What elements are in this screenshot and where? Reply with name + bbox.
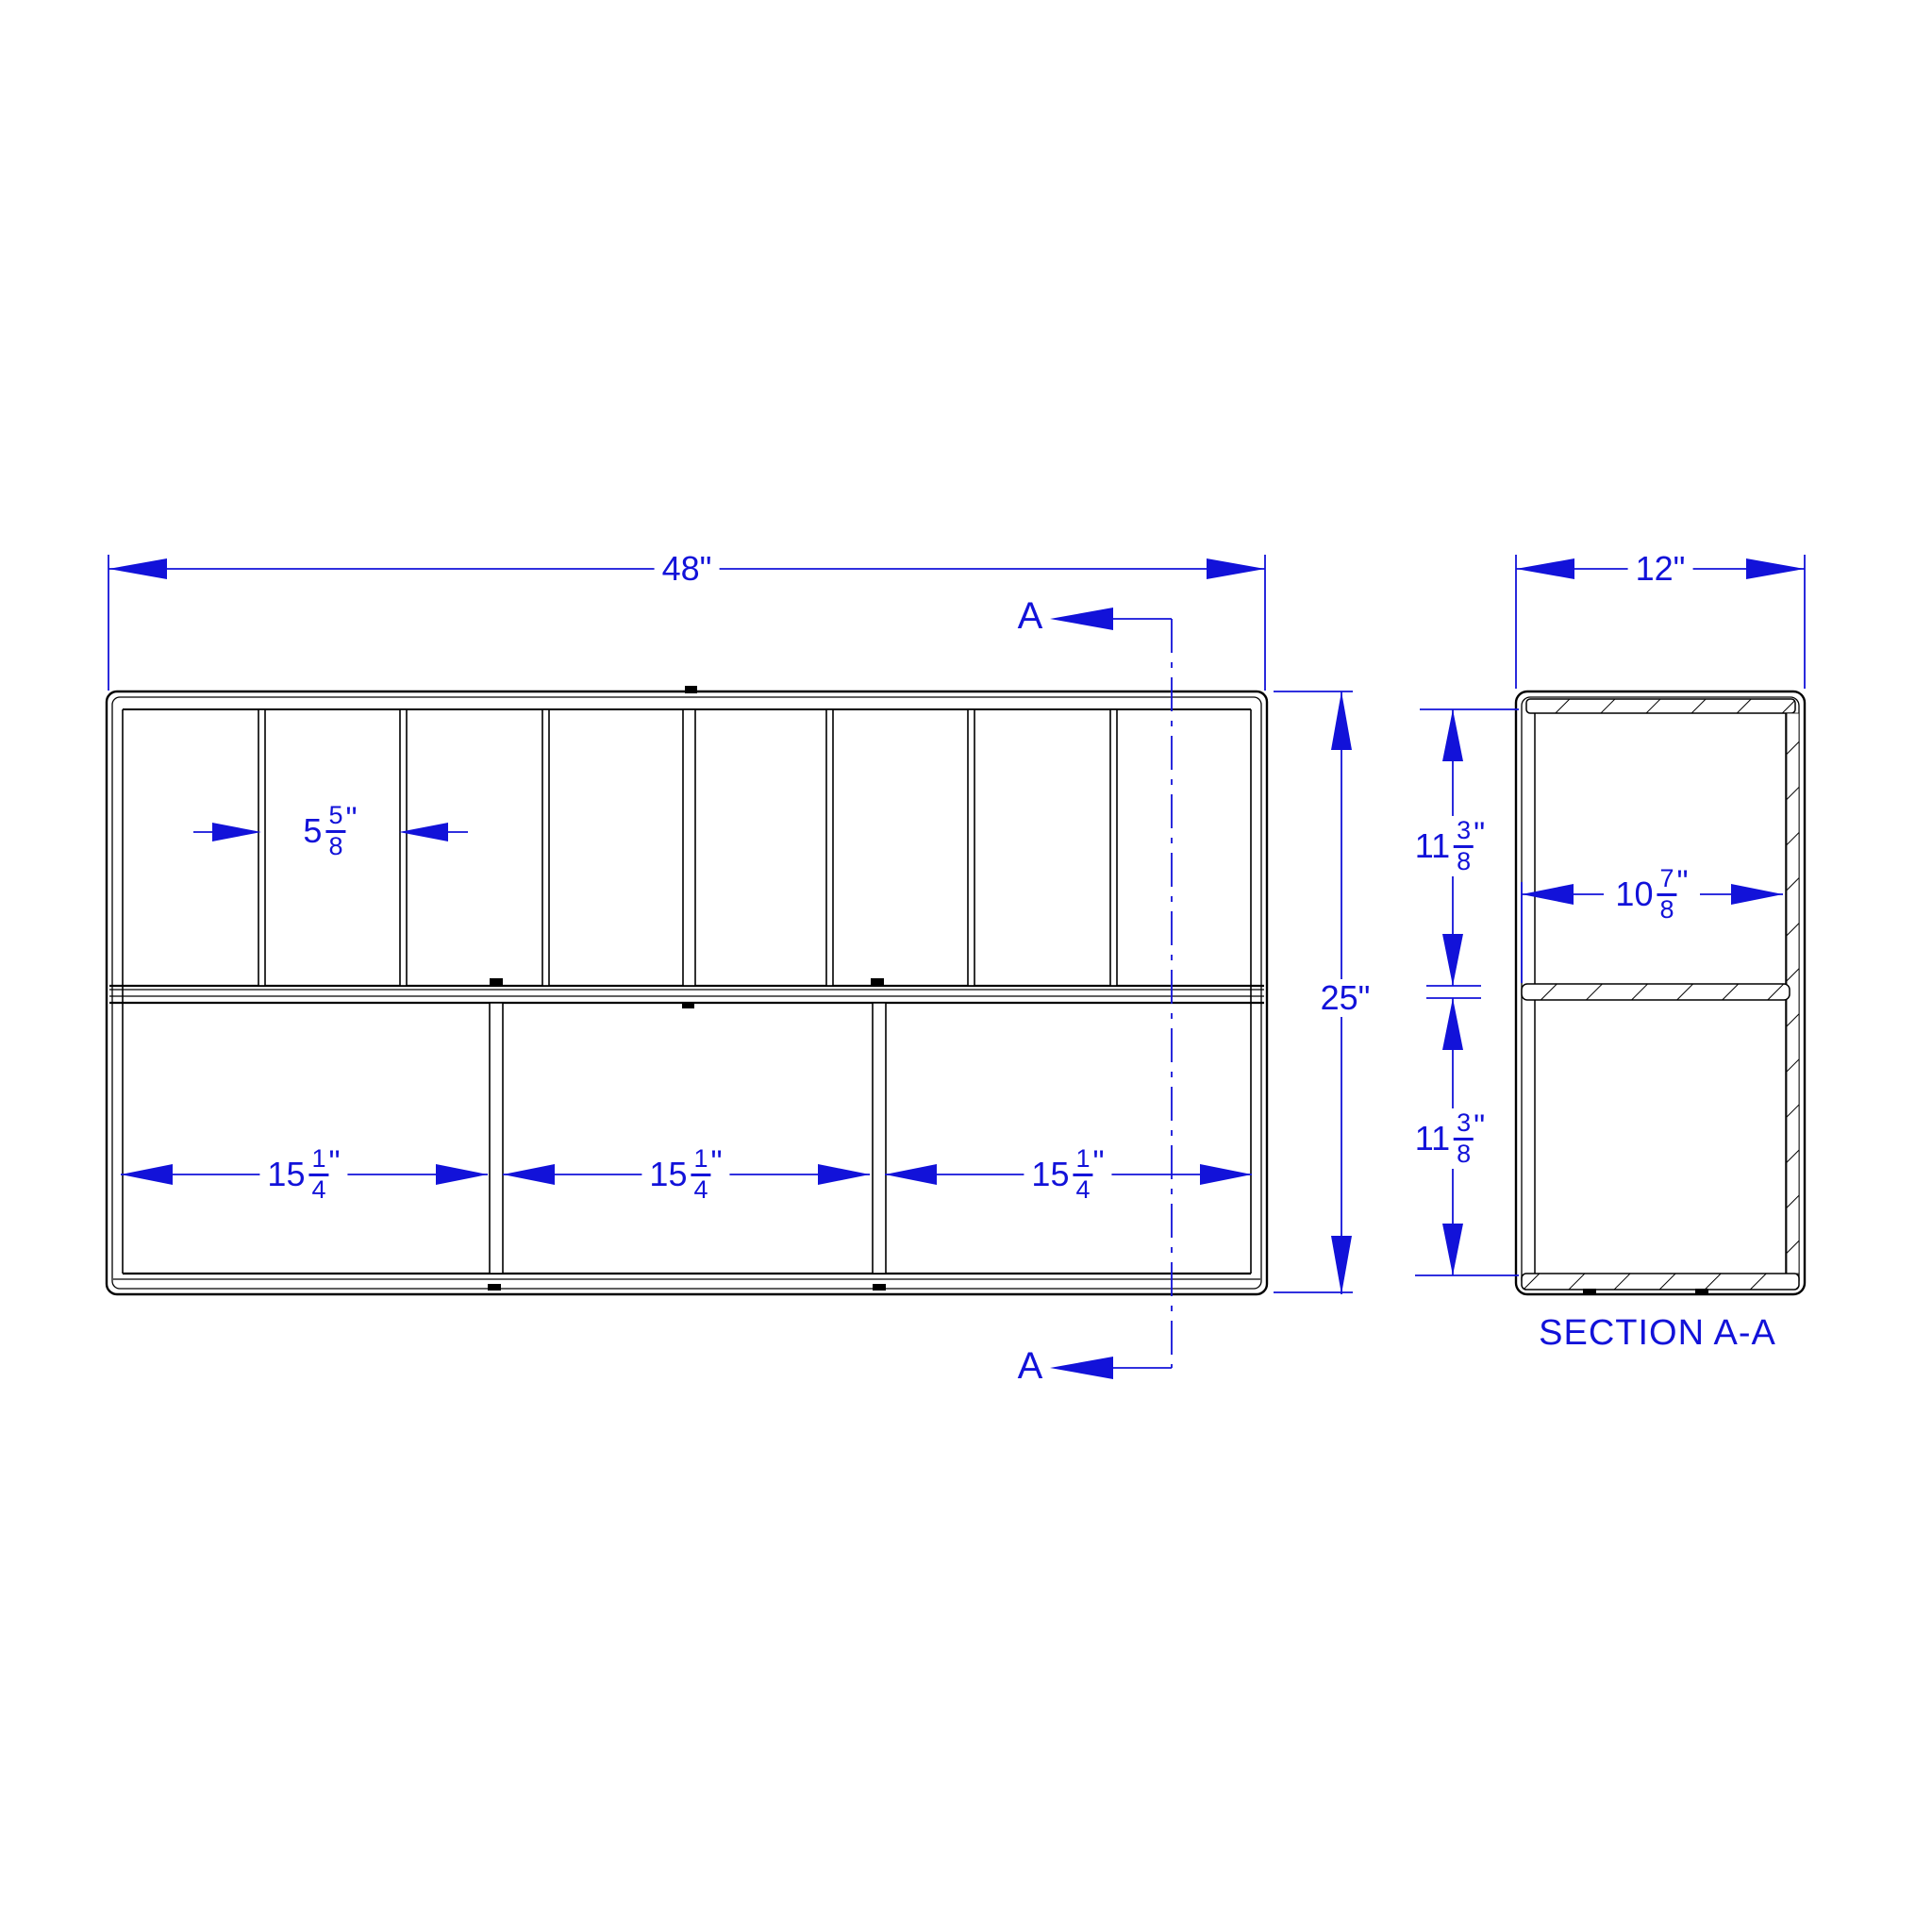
dim-label-section-lower-height: 1138" [1407,1108,1492,1169]
cad-drawing-sheet: 48" 12" 25" 558" 1514" 1514" 1514" 1138"… [0,0,1932,1932]
dim-label-front-height: 25" [1313,979,1378,1017]
section-mid-shelf [1522,984,1790,1000]
section-view-title: SECTION A-A [1539,1315,1776,1351]
dim-label-section-inner-width: 1078" [1607,864,1695,924]
section-bottom-slab [1522,1274,1799,1290]
dim-label-front-width: 48" [655,550,720,588]
drawing-geometry [0,0,1932,1932]
dim-label-section-upper-height: 1138" [1407,816,1492,876]
cut-label-a-bottom: A [1018,1347,1043,1385]
dim-label-bottom-compartment-1: 1514" [259,1144,347,1205]
section-view [1516,691,1805,1294]
dim-label-bottom-compartment-3: 1514" [1024,1144,1111,1205]
cut-label-a-top: A [1018,597,1043,635]
section-top-slab [1526,699,1795,713]
dim-label-section-width: 12" [1628,550,1693,588]
dim-label-bottom-compartment-2: 1514" [641,1144,729,1205]
dim-label-top-compartment: 558" [303,803,357,859]
